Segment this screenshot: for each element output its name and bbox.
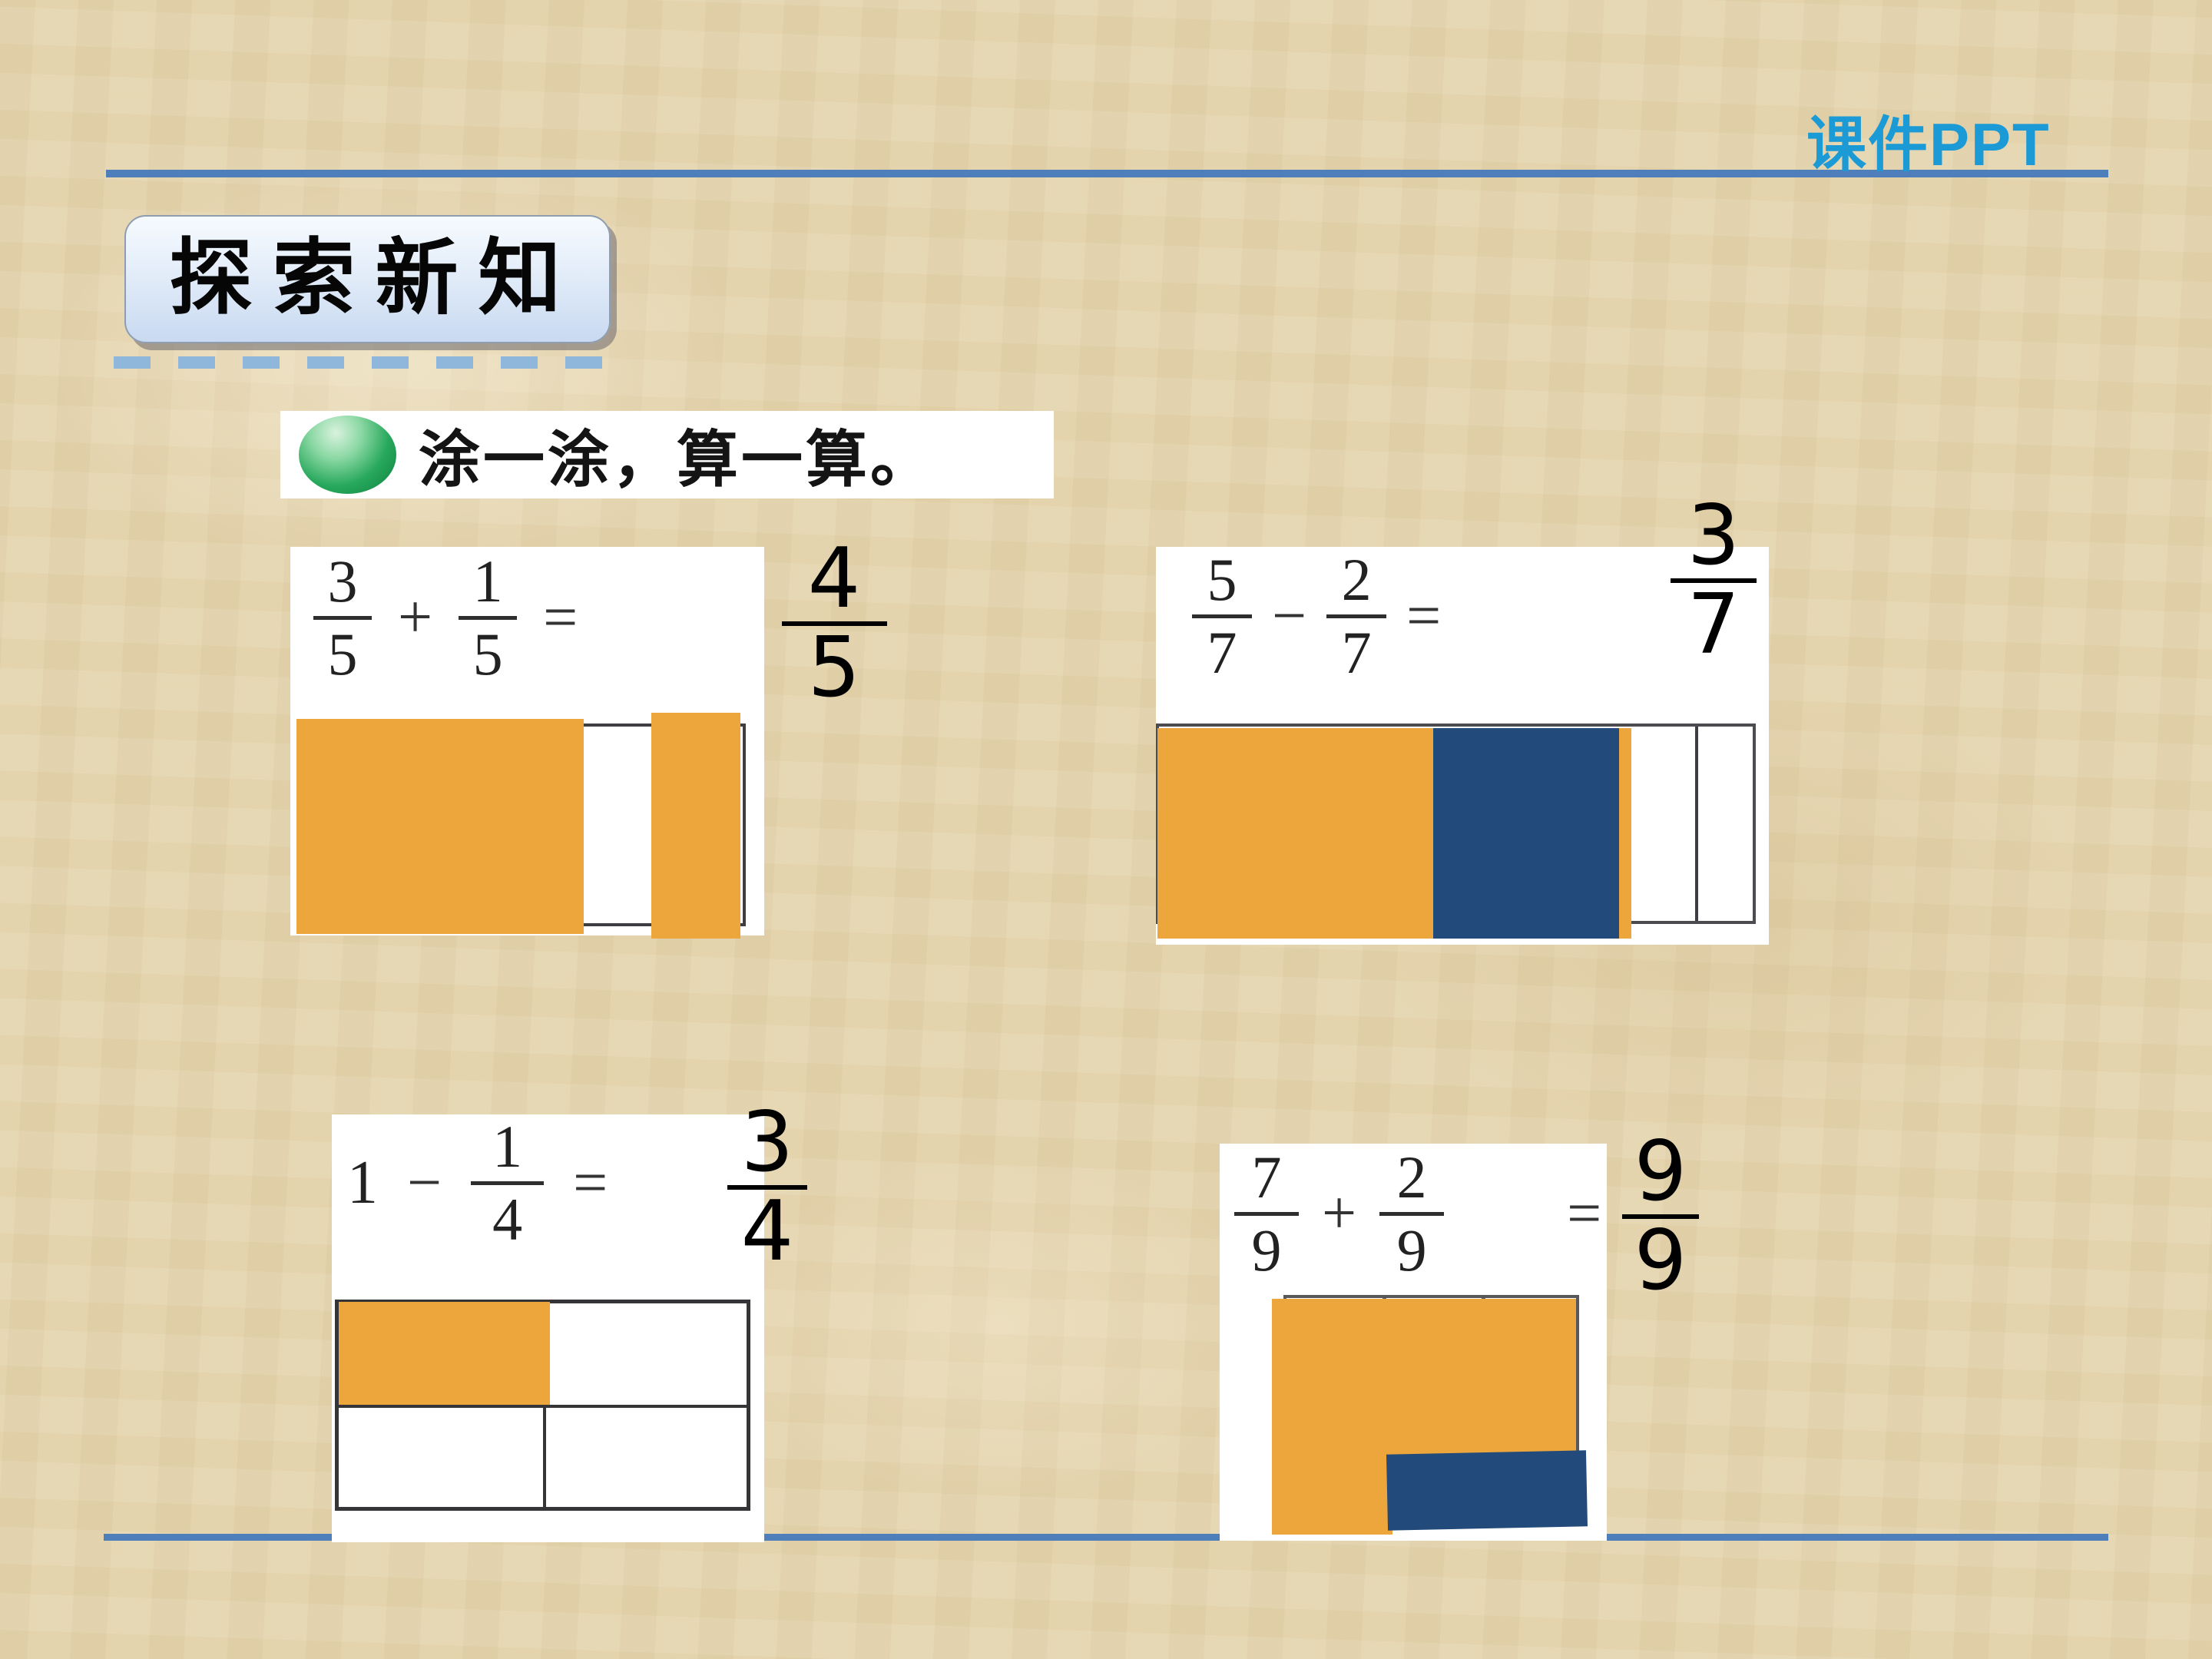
whole-number: 1 <box>347 1152 378 1214</box>
problem3-handwritten-answer: 3 4 <box>725 1104 810 1270</box>
problem4-equation: 7 9 + 2 9 = <box>1234 1146 1601 1281</box>
fraction: 1 5 <box>459 549 517 687</box>
fraction-bar <box>459 616 517 620</box>
minus-operator: − <box>1272 585 1306 647</box>
problem4-navy-shading <box>1386 1450 1588 1530</box>
problem2-navy-shading <box>1433 728 1619 939</box>
fraction: 2 7 <box>1326 548 1386 685</box>
fraction-denominator: 5 <box>328 622 358 687</box>
slide: 课件PPT 探索新知 涂一涂，算一算。 3 5 + 1 5 = 4 5 <box>0 0 2212 1659</box>
equals-sign: = <box>543 587 578 648</box>
fraction-numerator: 5 <box>1207 548 1237 612</box>
dashed-underline <box>114 356 605 369</box>
fraction-numerator: 3 <box>328 549 358 614</box>
fraction: 3 5 <box>313 549 372 687</box>
problem1-equation: 3 5 + 1 5 = <box>313 550 578 685</box>
equals-sign: = <box>573 1152 608 1214</box>
fraction-bar <box>1192 614 1252 618</box>
fraction: 7 9 <box>1234 1145 1299 1283</box>
answer-denominator: 4 <box>741 1194 794 1270</box>
fraction: 2 9 <box>1379 1145 1444 1283</box>
green-bullet-icon <box>299 416 396 494</box>
problem3-orange-shading <box>339 1302 550 1405</box>
problem1-orange-shading <box>651 713 740 939</box>
fraction-numerator: 2 <box>1342 548 1372 612</box>
plus-operator: + <box>1322 1183 1356 1244</box>
fraction-numerator: 2 <box>1397 1145 1427 1210</box>
fraction-denominator: 7 <box>1342 621 1372 685</box>
fraction: 1 4 <box>471 1114 544 1252</box>
fraction-bar <box>471 1181 544 1185</box>
fraction-bar <box>1234 1212 1299 1216</box>
fraction-denominator: 4 <box>492 1187 522 1252</box>
problem4-orange-shading <box>1272 1458 1392 1535</box>
problem2-equation: 5 7 − 2 7 = <box>1192 548 1441 684</box>
fraction-denominator: 5 <box>473 622 503 687</box>
answer-denominator: 5 <box>808 630 861 707</box>
watermark-text: 课件PPT <box>1806 97 2068 183</box>
fraction-bar <box>313 616 372 620</box>
fraction-denominator: 9 <box>1252 1218 1282 1283</box>
plus-operator: + <box>398 587 432 648</box>
fraction-numerator: 1 <box>473 549 503 614</box>
problem1-handwritten-answer: 4 5 <box>780 541 888 707</box>
equals-sign: = <box>1567 1183 1601 1244</box>
section-title-box: 探索新知 <box>124 215 611 343</box>
problem4-handwritten-answer: 9 9 <box>1622 1134 1699 1300</box>
problem3-equation: 1 − 1 4 = <box>347 1115 608 1250</box>
answer-numerator: 3 <box>1687 498 1740 575</box>
bar-cell-divider <box>1695 727 1698 921</box>
fraction-bar <box>1326 614 1386 618</box>
minus-operator: − <box>407 1152 442 1214</box>
problem2-handwritten-answer: 3 7 <box>1668 498 1759 664</box>
fraction-denominator: 9 <box>1397 1218 1427 1283</box>
problem4-orange-shading <box>1272 1299 1576 1461</box>
fraction-bar <box>1379 1212 1444 1216</box>
grid-horizontal-divider <box>339 1405 747 1408</box>
section-title: 探索新知 <box>154 238 581 321</box>
fraction-denominator: 7 <box>1207 621 1237 685</box>
answer-denominator: 7 <box>1687 587 1740 664</box>
prompt-strip: 涂一涂，算一算。 <box>280 411 1054 498</box>
fraction-numerator: 7 <box>1252 1145 1282 1210</box>
fraction-numerator: 1 <box>492 1114 522 1179</box>
equals-sign: = <box>1406 585 1441 647</box>
answer-denominator: 9 <box>1634 1223 1687 1300</box>
answer-numerator: 9 <box>1634 1134 1687 1210</box>
answer-numerator: 3 <box>741 1104 794 1181</box>
fraction: 5 7 <box>1192 548 1252 685</box>
problem1-orange-shading <box>296 719 584 934</box>
answer-numerator: 4 <box>808 541 861 618</box>
prompt-text: 涂一涂，算一算。 <box>419 411 935 498</box>
